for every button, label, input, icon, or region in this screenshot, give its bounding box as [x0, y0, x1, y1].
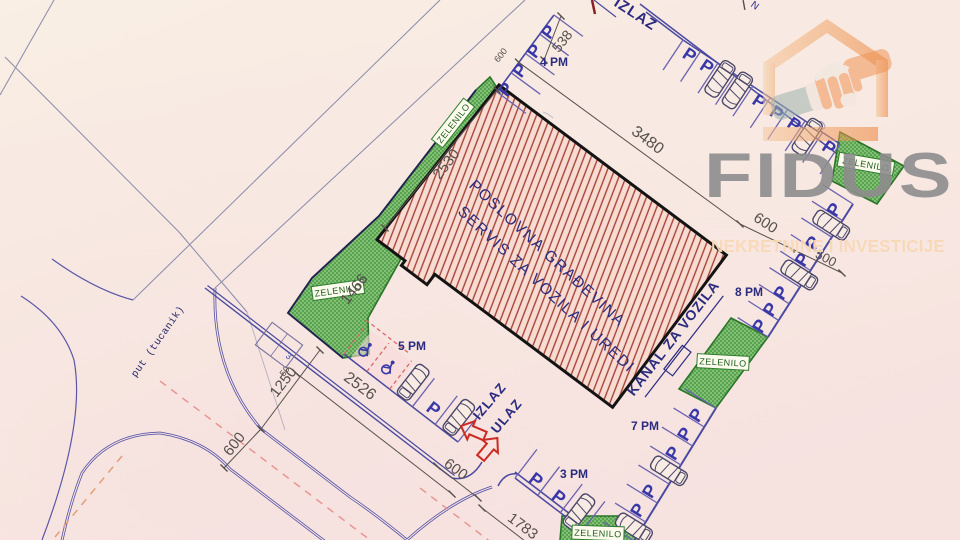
svg-text:FIDUS: FIDUS	[704, 141, 954, 211]
svg-text:4 PM: 4 PM	[540, 55, 568, 69]
svg-text:8 PM: 8 PM	[735, 285, 763, 299]
svg-text:5 PM: 5 PM	[398, 339, 426, 353]
svg-text:NEKRETNINE I INVESTICIJE: NEKRETNINE I INVESTICIJE	[711, 236, 945, 256]
svg-text:3 PM: 3 PM	[560, 467, 588, 481]
svg-text:7 PM: 7 PM	[631, 419, 659, 433]
svg-text:ZELENILO: ZELENILO	[574, 528, 622, 540]
